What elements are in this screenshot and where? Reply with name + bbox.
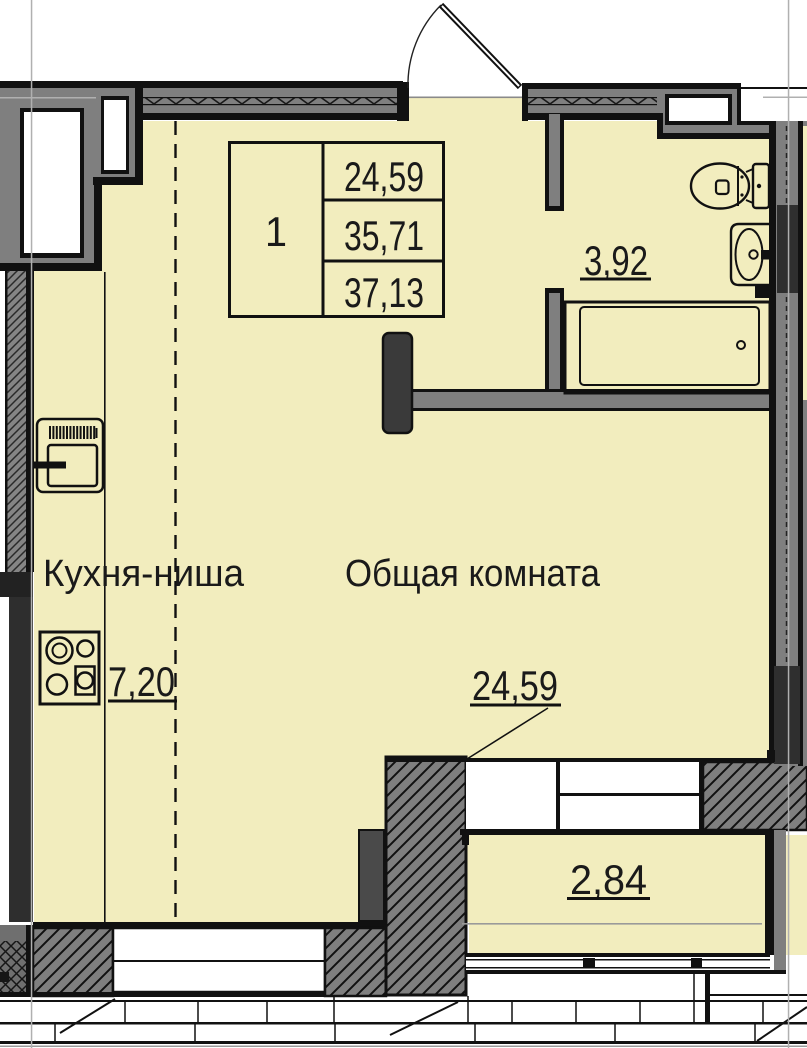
svg-text:1: 1	[265, 208, 287, 255]
svg-text:2,84: 2,84	[570, 856, 647, 903]
svg-text:Кухня-ниша: Кухня-ниша	[43, 553, 245, 595]
svg-text:37,13: 37,13	[344, 269, 424, 316]
svg-text:24,59: 24,59	[344, 153, 424, 200]
svg-text:24,59: 24,59	[472, 662, 558, 709]
svg-text:35,71: 35,71	[344, 212, 424, 259]
svg-text:3,92: 3,92	[584, 237, 648, 284]
svg-text:7,20: 7,20	[108, 658, 175, 705]
svg-text:Общая комната: Общая комната	[345, 553, 601, 595]
